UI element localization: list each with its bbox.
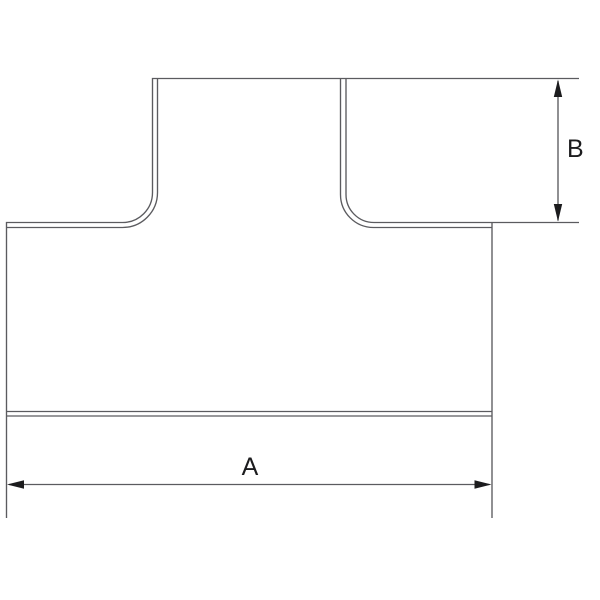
- dimension-b-bottom-arrowhead: [554, 204, 562, 222]
- dimension-b-top-arrowhead: [554, 80, 562, 98]
- dimension-b: B: [554, 80, 584, 222]
- inner-contour-left: [7, 79, 158, 228]
- dimension-a-label: A: [242, 453, 259, 481]
- inner-contour-right: [341, 79, 493, 228]
- tee-outline: [7, 79, 580, 519]
- dimension-a: A: [7, 453, 492, 489]
- dimension-a-left-arrowhead: [7, 480, 24, 488]
- dimension-b-label: B: [567, 135, 584, 163]
- outer-contour-left-and-cap: [7, 79, 580, 519]
- dimension-a-right-arrowhead: [475, 480, 492, 488]
- technical-drawing: A B: [0, 0, 600, 600]
- drawing-canvas: A B: [0, 0, 600, 600]
- outer-contour-right: [346, 79, 579, 223]
